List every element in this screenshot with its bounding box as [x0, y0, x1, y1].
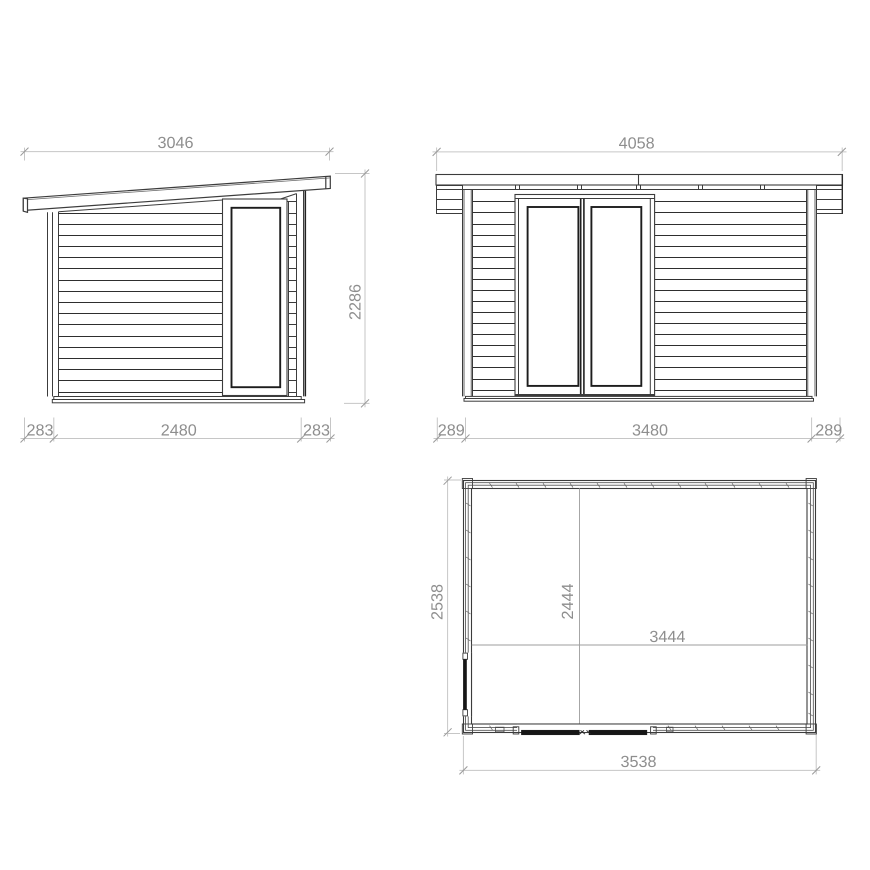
svg-text:2538: 2538 [429, 584, 447, 620]
svg-text:3538: 3538 [620, 753, 656, 771]
svg-text:289: 289 [438, 422, 465, 440]
svg-text:2286: 2286 [347, 284, 365, 320]
svg-text:2480: 2480 [161, 422, 197, 440]
svg-text:4058: 4058 [619, 134, 655, 152]
svg-text:2444: 2444 [559, 583, 577, 619]
svg-text:3444: 3444 [649, 628, 685, 646]
svg-text:3480: 3480 [632, 422, 668, 440]
svg-text:3046: 3046 [157, 134, 193, 152]
svg-text:283: 283 [26, 422, 53, 440]
svg-text:283: 283 [303, 422, 330, 440]
svg-text:289: 289 [815, 422, 842, 440]
